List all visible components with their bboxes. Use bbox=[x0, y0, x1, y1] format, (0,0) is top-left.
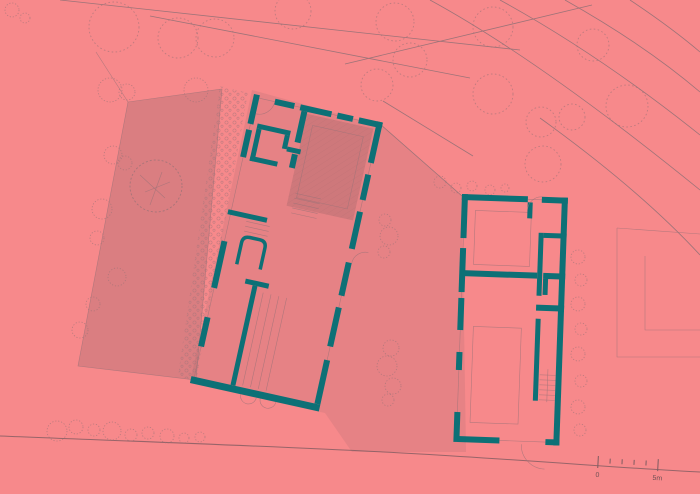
scale-start-label: 0 bbox=[595, 472, 599, 479]
scale-tick-major bbox=[658, 459, 659, 471]
site-plan-canvas: 0 5m bbox=[0, 0, 700, 494]
scale-tick-major bbox=[598, 456, 599, 468]
scale-end-label: 5m bbox=[652, 475, 662, 483]
site-plan: 0 5m bbox=[0, 0, 700, 494]
